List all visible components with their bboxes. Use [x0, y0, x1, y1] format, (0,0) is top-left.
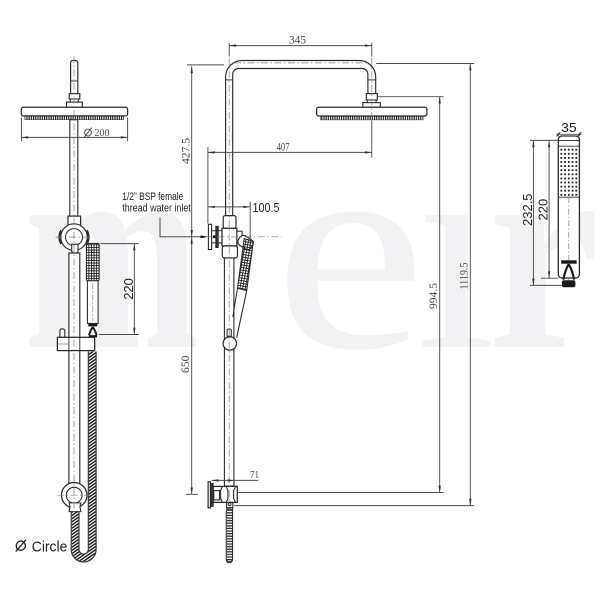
svg-text:220: 220	[535, 199, 550, 221]
svg-text:200: 200	[95, 128, 110, 139]
svg-text:220: 220	[121, 278, 136, 300]
svg-text:407: 407	[277, 140, 290, 154]
svg-text:r: r	[488, 92, 600, 410]
svg-text:35: 35	[561, 120, 577, 135]
svg-text:e: e	[274, 92, 426, 410]
svg-text:427.5: 427.5	[180, 138, 192, 164]
svg-text:345: 345	[289, 32, 306, 46]
svg-text:994.5: 994.5	[428, 283, 440, 309]
svg-text:ı: ı	[416, 92, 496, 410]
svg-text:71: 71	[250, 470, 259, 481]
svg-text:100.5: 100.5	[253, 200, 280, 215]
svg-text:1/2” BSP female: 1/2” BSP female	[122, 191, 183, 203]
svg-text:232.5: 232.5	[520, 193, 535, 226]
svg-text:m: m	[24, 92, 200, 410]
svg-text:thread water inlet: thread water inlet	[122, 202, 191, 214]
svg-text:Circle: Circle	[32, 540, 68, 556]
svg-text:650: 650	[180, 355, 192, 373]
svg-text:1119.5: 1119.5	[459, 262, 471, 289]
